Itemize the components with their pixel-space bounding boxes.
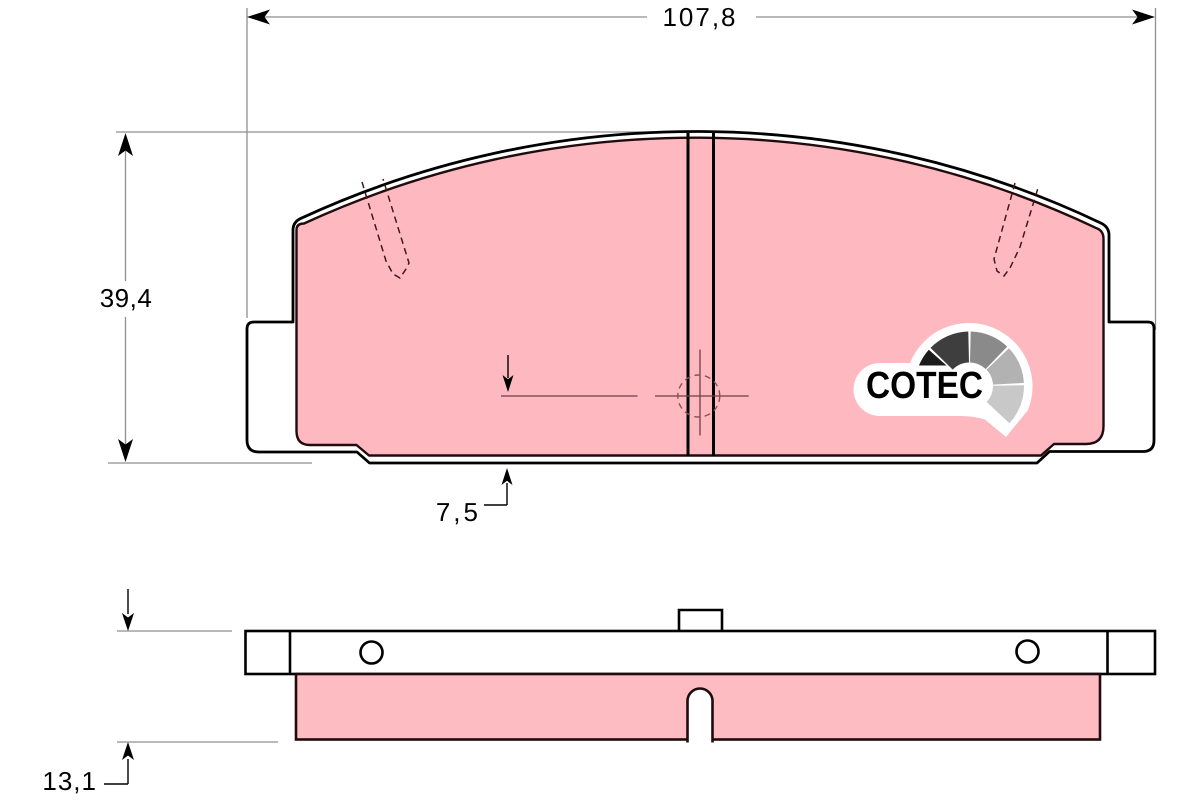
svg-text:7,5: 7,5 (436, 497, 481, 527)
svg-text:13,1: 13,1 (42, 766, 97, 796)
svg-text:COTEC: COTEC (866, 365, 983, 407)
svg-text:39,4: 39,4 (100, 283, 153, 313)
svg-text:107,8: 107,8 (662, 2, 737, 32)
